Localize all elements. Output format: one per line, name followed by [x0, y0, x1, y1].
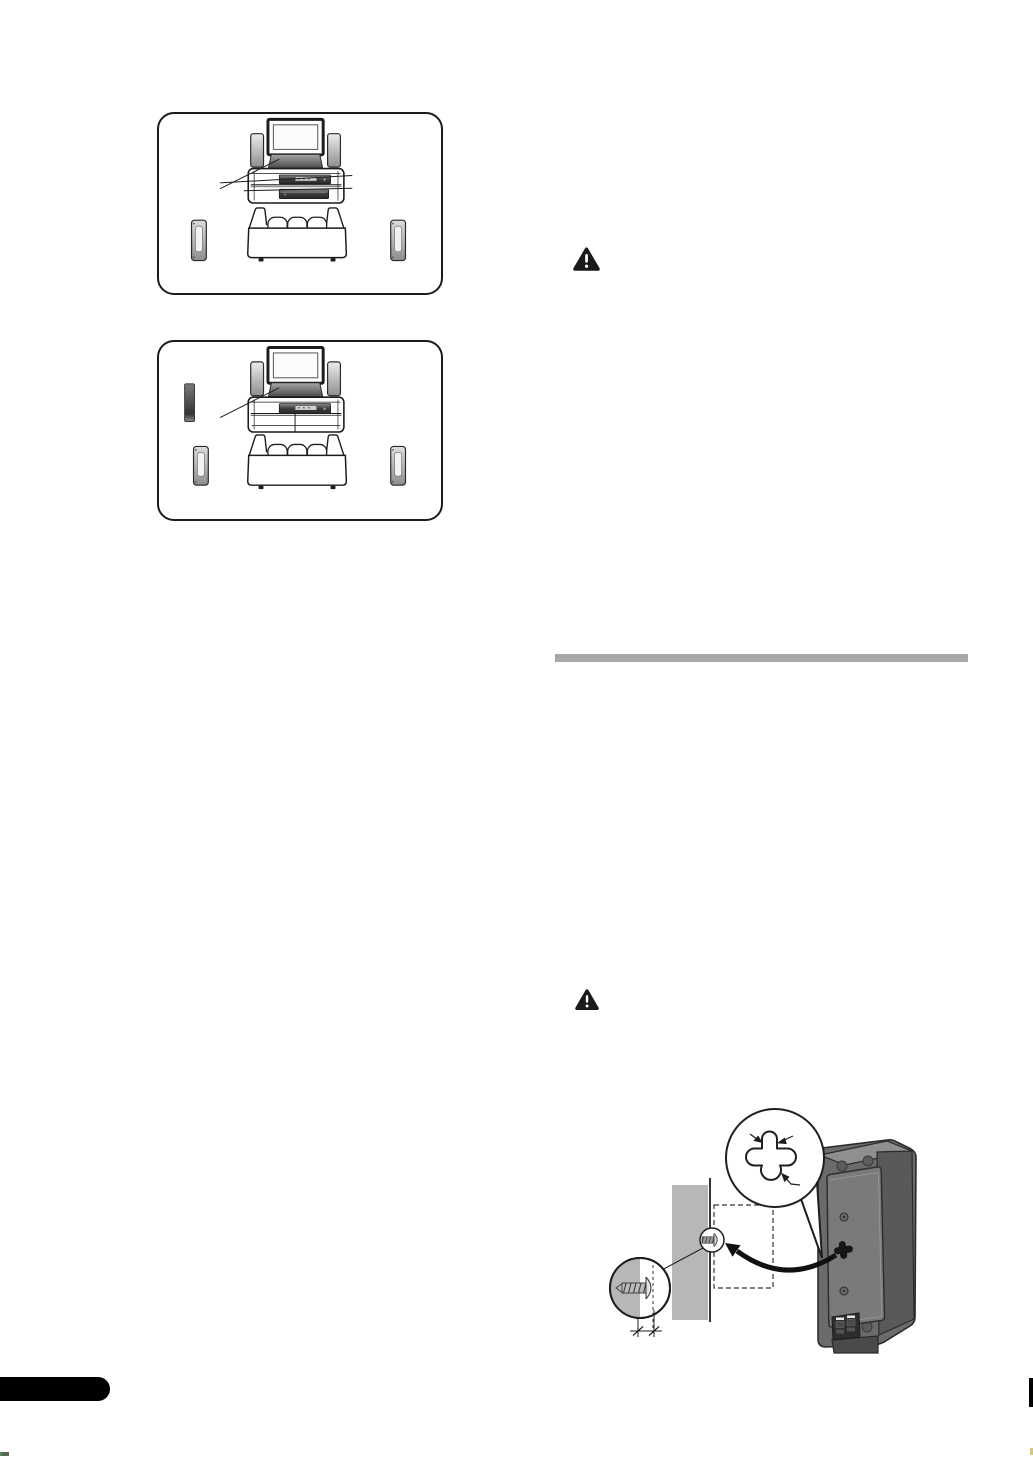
warning-icon [575, 988, 599, 1012]
surround-speaker-left [194, 446, 209, 485]
keyhole-slot-detail-callout [726, 1109, 824, 1258]
pad [837, 1161, 847, 1171]
speaker-back-panel [827, 1167, 885, 1327]
section-divider-bar [555, 654, 968, 662]
warning-triangle-icon [573, 246, 600, 272]
front-tower-speaker-right [328, 134, 341, 167]
placement-diagram-bottom [157, 340, 443, 521]
surround-speaker-left [192, 220, 207, 260]
front-tower-speaker-right [328, 362, 341, 396]
center-speaker [268, 154, 322, 168]
speaker-terminals [832, 1313, 860, 1340]
wall-mounted-speaker [185, 384, 195, 422]
pad [863, 1156, 873, 1166]
av-rack [248, 397, 344, 432]
tv [268, 347, 323, 383]
warning-triangle-icon [575, 988, 599, 1011]
receiver-unit [279, 404, 330, 414]
surround-speaker-right [391, 446, 406, 485]
screw-protrusion-detail-callout [610, 1258, 670, 1337]
player-unit [279, 189, 328, 198]
surround-speaker-right [391, 220, 406, 260]
sofa [248, 208, 347, 262]
screw-in-wall-marker [700, 1228, 724, 1252]
front-tower-speaker-left [251, 362, 264, 396]
warning-icon [573, 246, 600, 272]
speaker-wall-mounting-illustration [600, 1095, 955, 1395]
wall-mount-diagram [600, 1095, 955, 1395]
home-theater-room-layout-illustration [159, 114, 441, 293]
speaker-rear-view [818, 1140, 916, 1353]
home-theater-room-layout-illustration-with-wall-speaker [159, 342, 441, 519]
front-tower-speaker-left [251, 134, 264, 167]
manual-page: { "page": { "width_px": 1033, "height_px… [0, 0, 1033, 1458]
placement-diagram-top [157, 112, 443, 295]
footer-page-tab [0, 1377, 110, 1401]
edge-index-bar [1029, 1378, 1033, 1407]
print-artifact [0, 1452, 9, 1456]
center-speaker [268, 383, 322, 397]
tv [268, 119, 323, 154]
sofa [248, 435, 347, 489]
